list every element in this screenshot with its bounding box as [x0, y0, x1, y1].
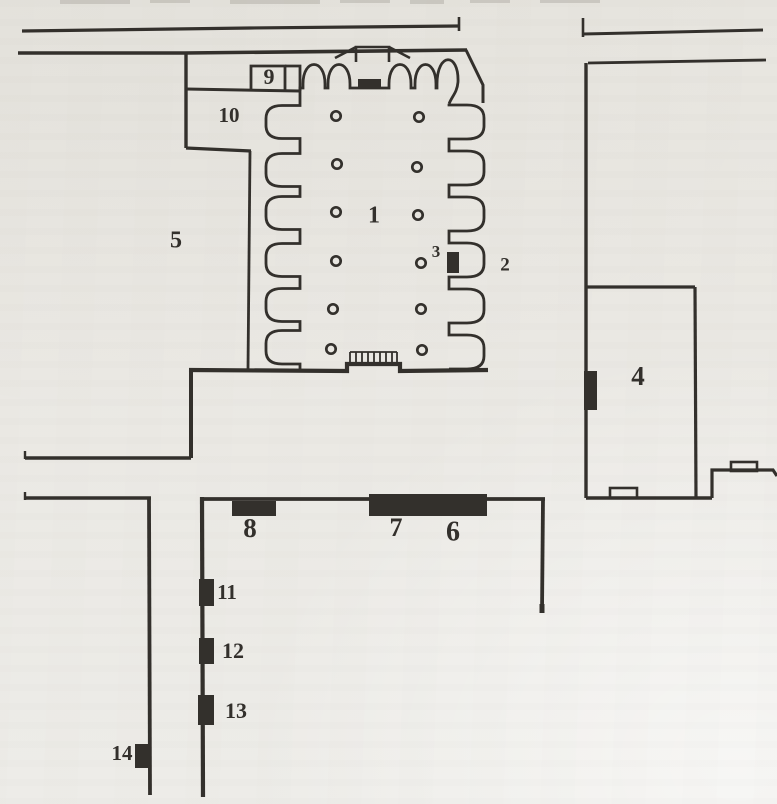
- svg-text:4: 4: [631, 361, 645, 391]
- svg-text:3: 3: [432, 242, 441, 261]
- svg-text:6: 6: [446, 516, 460, 547]
- svg-text:10: 10: [219, 103, 240, 127]
- svg-text:5: 5: [170, 228, 182, 254]
- svg-text:8: 8: [243, 513, 257, 543]
- svg-text:14: 14: [112, 741, 134, 765]
- svg-text:7: 7: [390, 513, 403, 542]
- svg-text:1: 1: [368, 203, 380, 229]
- svg-text:12: 12: [222, 638, 244, 663]
- svg-text:2: 2: [500, 254, 510, 275]
- svg-text:11: 11: [217, 580, 237, 604]
- svg-text:9: 9: [264, 64, 275, 89]
- svg-text:13: 13: [225, 698, 247, 723]
